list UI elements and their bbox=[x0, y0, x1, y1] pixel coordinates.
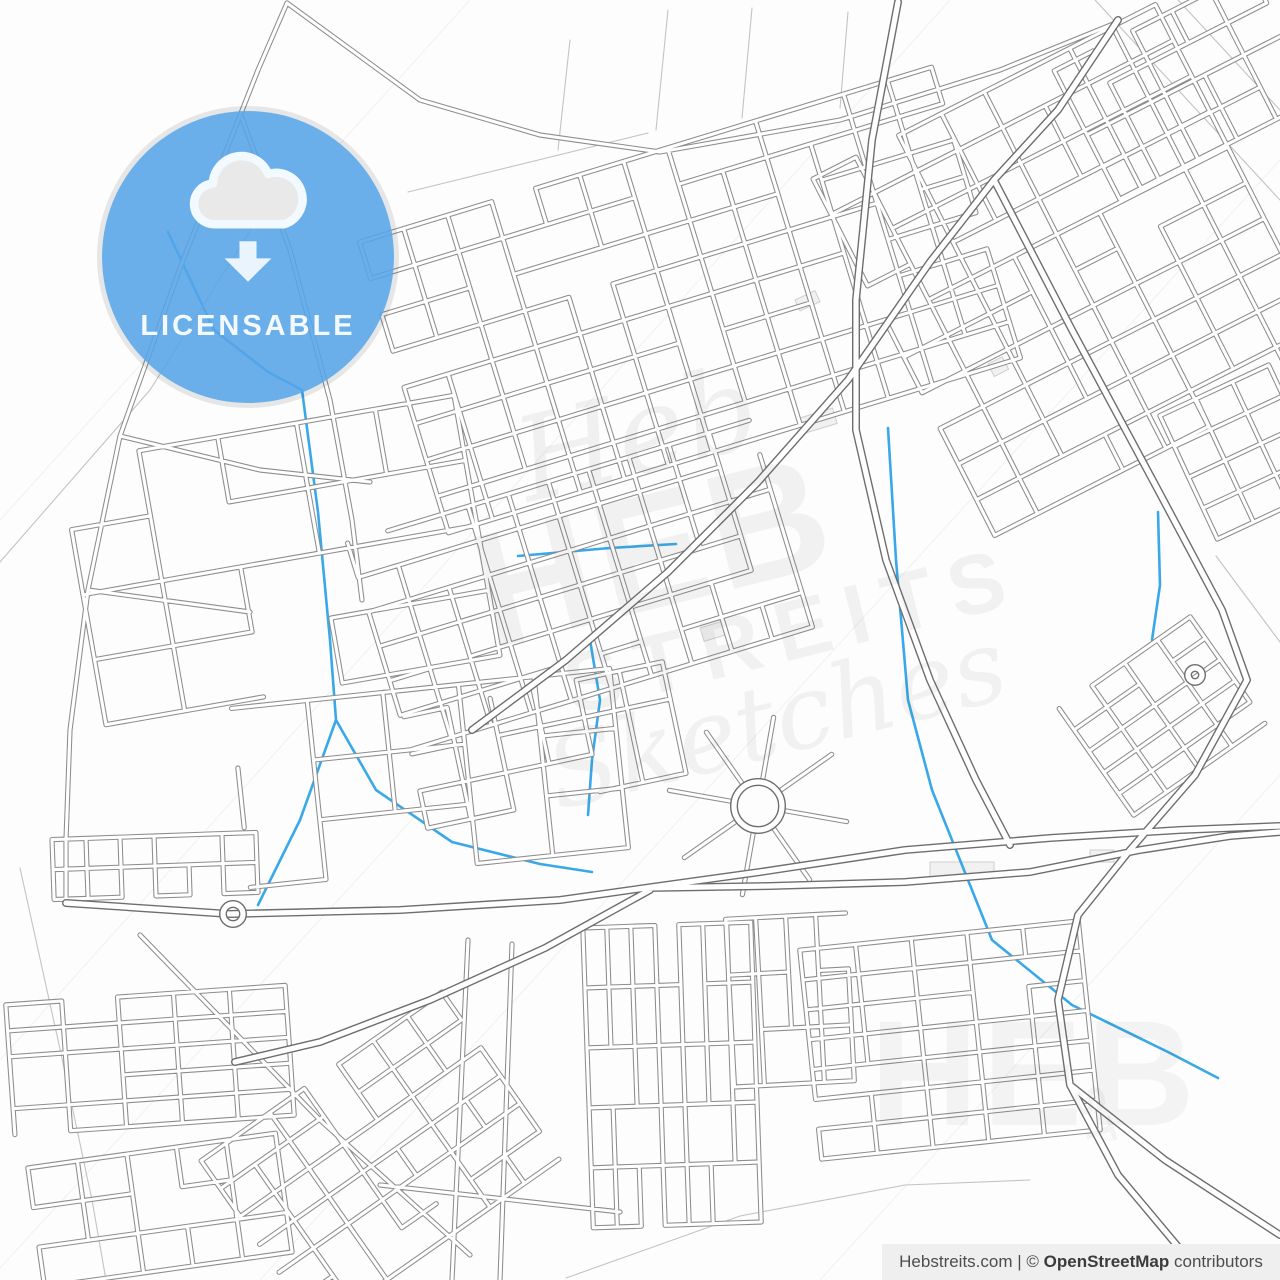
building-footprints bbox=[700, 291, 1114, 878]
attribution-bar: Hebstreits.com | © OpenStreetMap contrib… bbox=[882, 1244, 1280, 1280]
cloud-download-icon bbox=[173, 141, 323, 301]
attribution-prefix: Hebstreits.com | © bbox=[899, 1252, 1043, 1272]
map-poster: Heb HEB STREITS Sketches HEB ST LICENSAB… bbox=[0, 0, 1280, 1280]
badge-label: LICENSABLE bbox=[102, 310, 394, 343]
download-arrow bbox=[225, 241, 272, 282]
licensable-badge[interactable]: LICENSABLE bbox=[102, 111, 394, 403]
attribution-suffix: contributors bbox=[1169, 1252, 1263, 1272]
attribution-osm: OpenStreetMap bbox=[1044, 1252, 1170, 1272]
cloud-shape bbox=[194, 156, 302, 224]
